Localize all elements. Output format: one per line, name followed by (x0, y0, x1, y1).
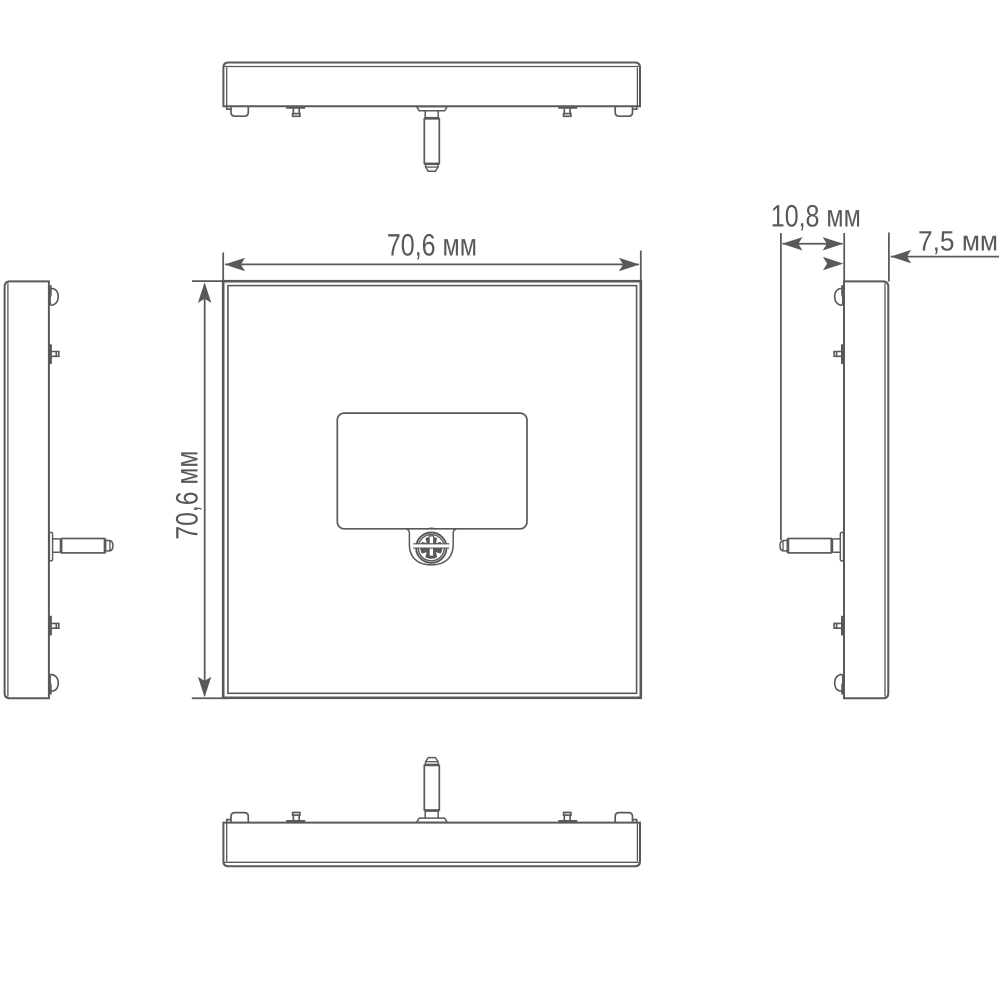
svg-text:10,8 мм: 10,8 мм (771, 198, 861, 233)
svg-text:7,5 мм: 7,5 мм (918, 225, 998, 256)
svg-text:70,6 мм: 70,6 мм (170, 451, 205, 540)
svg-text:70,6 мм: 70,6 мм (387, 227, 477, 262)
